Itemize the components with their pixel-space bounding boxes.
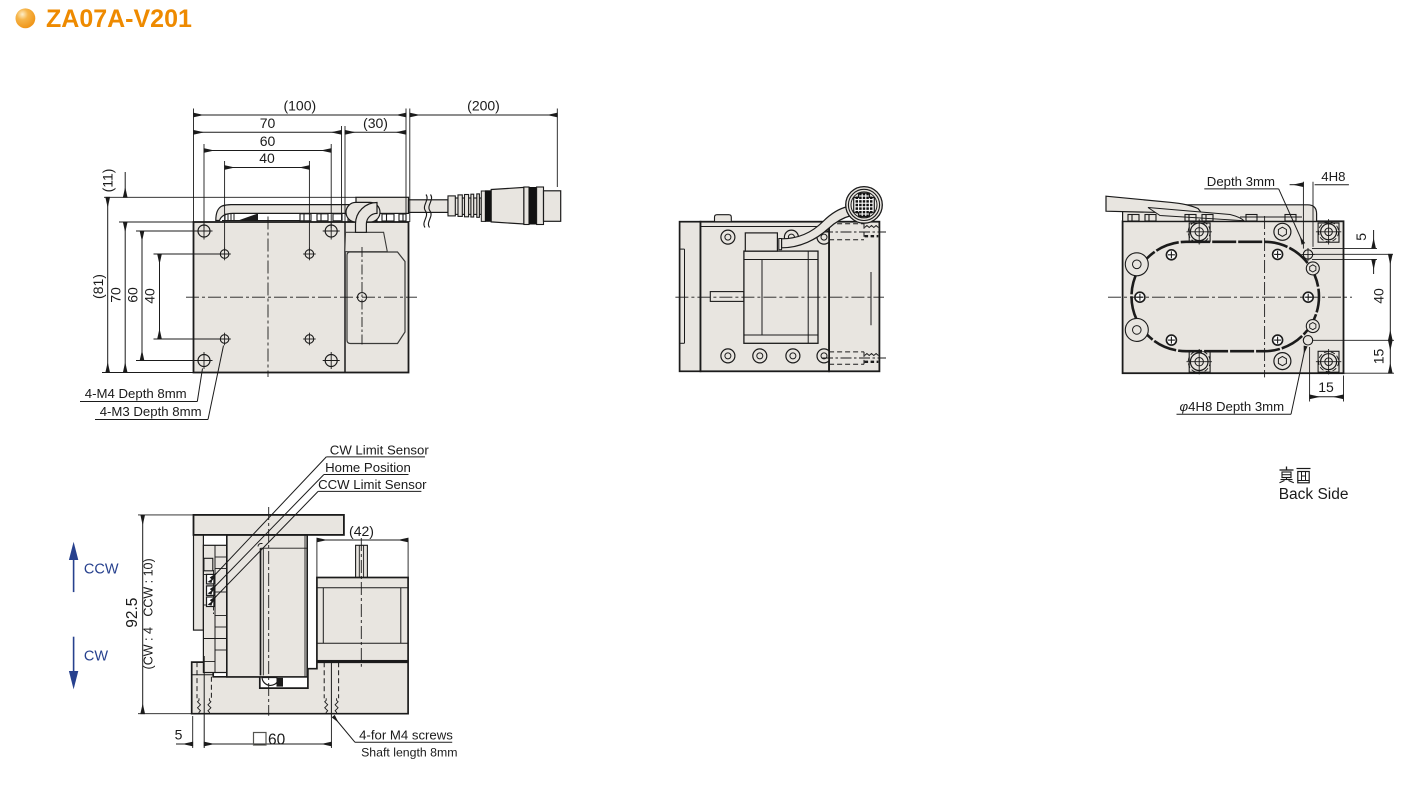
svg-text:5: 5 [1353, 233, 1369, 241]
svg-text:40: 40 [142, 288, 158, 304]
svg-text:92.5: 92.5 [124, 598, 141, 628]
svg-text:40: 40 [1371, 288, 1387, 304]
svg-text:(81): (81) [90, 274, 106, 299]
svg-text:4-M3 Depth 8mm: 4-M3 Depth 8mm [100, 404, 202, 419]
svg-text:Home Position: Home Position [325, 460, 411, 475]
svg-text:(42): (42) [349, 523, 374, 539]
svg-text:(100): (100) [283, 98, 316, 114]
svg-text:(30): (30) [363, 115, 388, 131]
svg-text:(11): (11) [100, 169, 116, 193]
svg-text:CCW: CCW [84, 562, 119, 578]
svg-text:Shaft length 8mm: Shaft length 8mm [361, 746, 457, 760]
svg-text:60: 60 [268, 732, 286, 749]
svg-text:(200): (200) [467, 98, 500, 114]
svg-text:40: 40 [259, 150, 275, 166]
svg-text:CW: CW [84, 649, 108, 665]
svg-text:4-M4 Depth 8mm: 4-M4 Depth 8mm [85, 386, 187, 401]
svg-text:Back Side: Back Side [1279, 486, 1349, 503]
svg-text:60: 60 [260, 133, 276, 149]
svg-text:4H8: 4H8 [1321, 169, 1345, 184]
svg-text:60: 60 [125, 287, 141, 303]
svg-text:70: 70 [108, 287, 124, 303]
svg-text:15: 15 [1371, 349, 1387, 365]
svg-text:70: 70 [260, 115, 276, 131]
svg-text:ZA07A-V201: ZA07A-V201 [46, 5, 192, 33]
svg-text:Depth 3mm: Depth 3mm [1207, 174, 1275, 189]
svg-text:4-for M4 screws: 4-for M4 screws [359, 728, 453, 743]
svg-text:(CW : 4 CCW : 10): (CW : 4 CCW : 10) [142, 558, 156, 669]
svg-text:φ4H8 Depth 3mm: φ4H8 Depth 3mm [1180, 399, 1285, 414]
svg-text:5: 5 [175, 727, 183, 743]
svg-text:CCW Limit Sensor: CCW Limit Sensor [318, 477, 427, 492]
svg-text:CW Limit Sensor: CW Limit Sensor [330, 443, 430, 458]
svg-text:15: 15 [1318, 379, 1334, 395]
